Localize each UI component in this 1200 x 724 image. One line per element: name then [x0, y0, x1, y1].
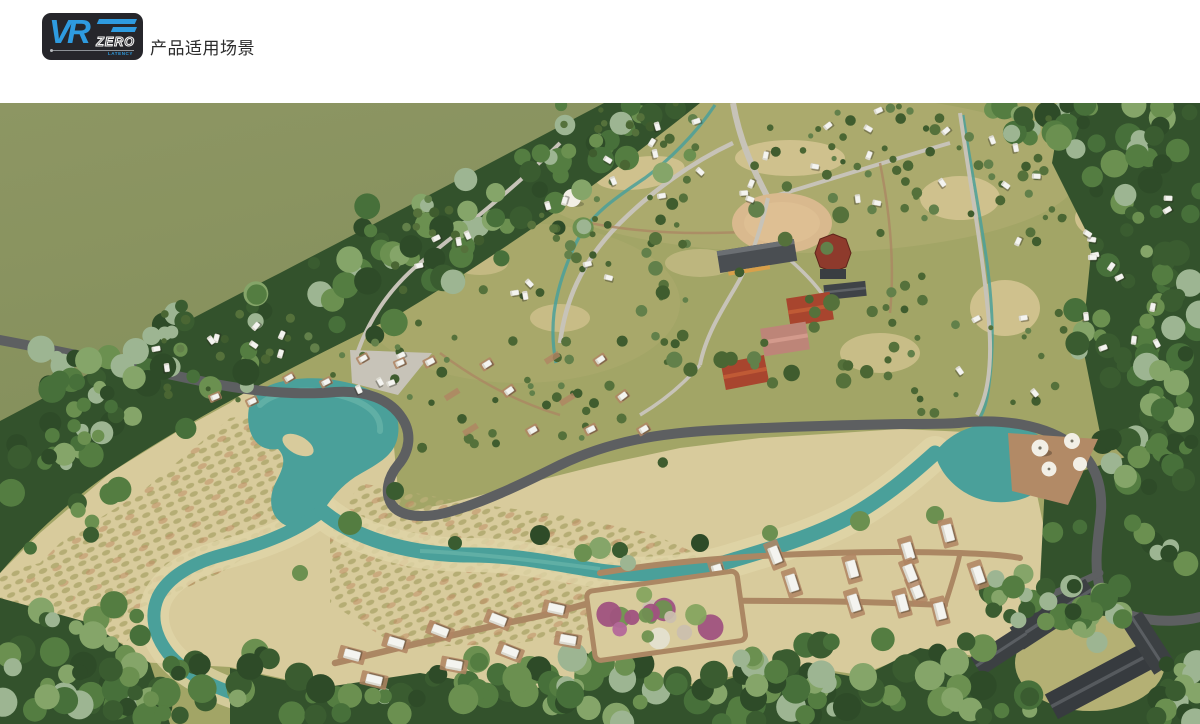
page-title: 产品适用场景: [150, 34, 255, 59]
product-scenario-slide: VR ZERO LATENCY 产品适用场景: [0, 0, 1200, 724]
brand-logo: VR ZERO LATENCY: [42, 13, 143, 60]
rv-resort-aerial-rendering: [0, 103, 1200, 724]
logo-latency-text: LATENCY: [108, 52, 133, 57]
logo-vr-text: VR: [49, 14, 87, 50]
header: VR ZERO LATENCY 产品适用场景: [0, 0, 1200, 103]
logo-zero-text: ZERO: [96, 36, 135, 49]
